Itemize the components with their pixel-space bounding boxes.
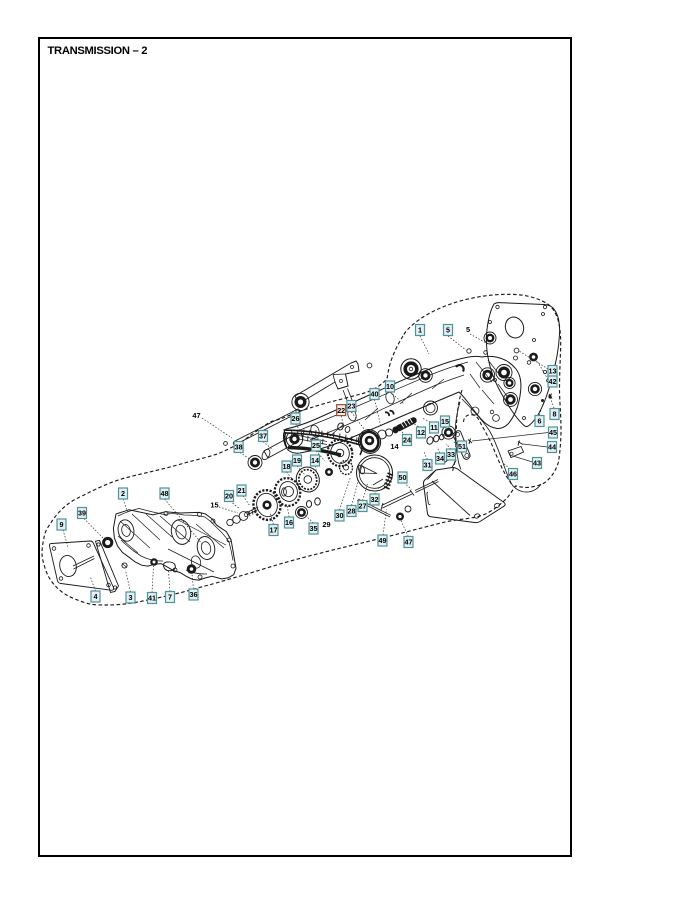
svg-text:37: 37 [259,432,267,441]
svg-text:24: 24 [403,436,411,445]
svg-text:51: 51 [458,442,466,451]
svg-text:33: 33 [447,450,455,459]
svg-text:5: 5 [446,326,450,335]
svg-text:41: 41 [148,594,156,603]
svg-text:44: 44 [548,443,556,452]
svg-text:28: 28 [348,507,356,516]
svg-text:36: 36 [190,590,198,599]
svg-text:42: 42 [549,377,557,386]
svg-text:34: 34 [436,454,444,463]
svg-text:11: 11 [430,423,438,432]
svg-text:6: 6 [538,417,542,426]
svg-text:30: 30 [336,511,344,520]
svg-text:32: 32 [371,495,379,504]
svg-text:14: 14 [311,456,319,465]
svg-text:29: 29 [322,520,330,529]
svg-text:15: 15 [210,501,218,510]
svg-text:20: 20 [225,492,233,501]
svg-text:4: 4 [94,592,98,601]
svg-text:10: 10 [386,382,394,391]
svg-text:38: 38 [235,443,243,452]
svg-text:27: 27 [359,502,367,511]
svg-text:48: 48 [161,489,169,498]
svg-text:47: 47 [405,538,413,547]
svg-text:49: 49 [379,536,387,545]
svg-text:47: 47 [192,411,200,420]
svg-text:22: 22 [337,406,345,415]
svg-text:31: 31 [424,461,432,470]
svg-text:25: 25 [312,441,320,450]
svg-text:45: 45 [549,428,557,437]
svg-text:8: 8 [553,410,557,419]
svg-text:15: 15 [441,417,449,426]
svg-text:46: 46 [509,470,517,479]
svg-text:3: 3 [129,593,133,602]
svg-text:18: 18 [283,462,291,471]
svg-text:35: 35 [310,524,318,533]
svg-text:1: 1 [418,326,422,335]
svg-text:50: 50 [399,473,407,482]
svg-text:40: 40 [371,390,379,399]
svg-text:12: 12 [417,428,425,437]
svg-text:19: 19 [293,456,301,465]
svg-text:9: 9 [60,520,64,529]
svg-text:39: 39 [78,509,86,518]
svg-text:TRANSMISSION – 2: TRANSMISSION – 2 [48,45,148,57]
svg-text:23: 23 [347,402,355,411]
svg-text:17: 17 [270,526,278,535]
svg-text:43: 43 [533,459,541,468]
svg-text:21: 21 [238,486,246,495]
svg-text:14: 14 [390,442,399,451]
svg-text:5: 5 [466,325,470,334]
svg-text:26: 26 [292,414,300,423]
svg-text:2: 2 [121,489,125,498]
svg-text:16: 16 [285,518,293,527]
svg-text:13: 13 [549,367,557,376]
svg-text:7: 7 [168,593,172,602]
